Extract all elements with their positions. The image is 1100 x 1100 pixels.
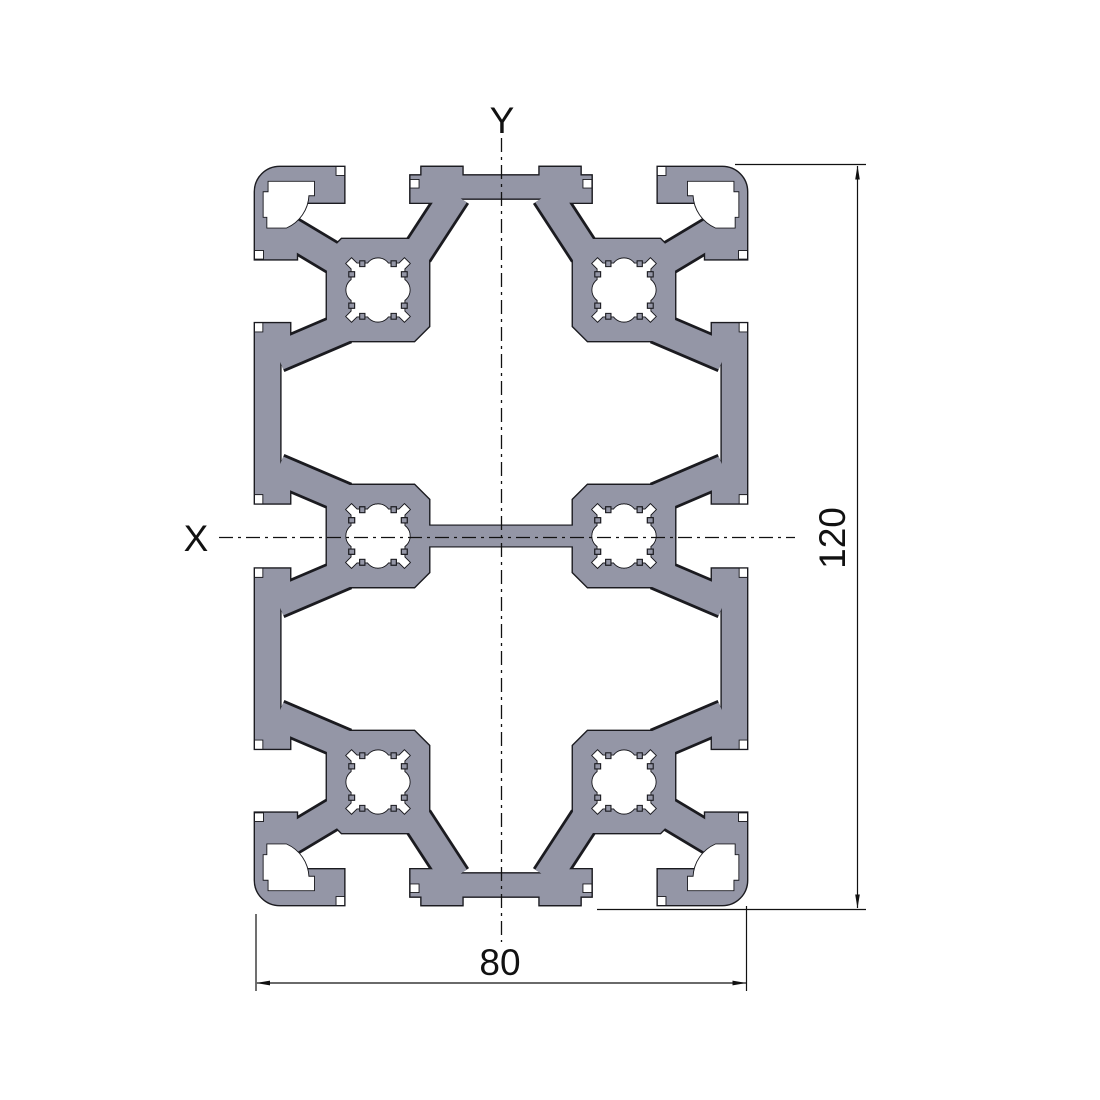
thread-tooth bbox=[637, 559, 642, 565]
thread-tooth bbox=[637, 313, 642, 319]
cavity bbox=[630, 769, 655, 794]
cavity bbox=[365, 788, 390, 813]
thread-tooth bbox=[360, 753, 365, 759]
arrow-down-icon bbox=[855, 895, 860, 909]
cavity bbox=[592, 769, 617, 794]
cavity bbox=[346, 523, 371, 548]
cavity bbox=[264, 182, 314, 228]
technical-drawing: Y X 120 80 bbox=[0, 0, 1100, 1100]
thread-tooth bbox=[595, 549, 601, 554]
cavity bbox=[365, 504, 390, 529]
thread-tooth bbox=[401, 549, 407, 554]
thread-tooth bbox=[606, 313, 611, 319]
cavity bbox=[255, 740, 262, 748]
cavity bbox=[411, 180, 419, 188]
thread-tooth bbox=[637, 753, 642, 759]
cavity bbox=[739, 813, 747, 821]
cavity bbox=[630, 277, 655, 302]
profile-segment bbox=[712, 323, 747, 503]
profile-segment bbox=[255, 569, 290, 749]
cavity bbox=[365, 542, 390, 567]
axis-label-y: Y bbox=[490, 100, 515, 141]
cavity bbox=[384, 277, 409, 302]
thread-tooth bbox=[349, 549, 355, 554]
thread-tooth bbox=[637, 261, 642, 267]
thread-tooth bbox=[647, 764, 653, 769]
thread-tooth bbox=[606, 261, 611, 267]
thread-tooth bbox=[360, 313, 365, 319]
cavity bbox=[255, 323, 262, 331]
cavity bbox=[264, 844, 314, 890]
thread-tooth bbox=[595, 795, 601, 800]
cavity bbox=[740, 495, 747, 503]
thread-tooth bbox=[391, 313, 396, 319]
thread-tooth bbox=[401, 303, 407, 308]
thread-tooth bbox=[606, 753, 611, 759]
cavity bbox=[611, 258, 636, 283]
dimension-width: 80 bbox=[256, 906, 747, 991]
thread-tooth bbox=[647, 518, 653, 523]
thread-tooth bbox=[647, 303, 653, 308]
cavity bbox=[336, 897, 344, 905]
cavity bbox=[365, 750, 390, 775]
thread-tooth bbox=[647, 795, 653, 800]
cavity bbox=[658, 167, 666, 175]
cavity bbox=[688, 844, 738, 890]
thread-tooth bbox=[647, 272, 653, 277]
thread-tooth bbox=[606, 559, 611, 565]
profile-segment bbox=[712, 569, 747, 749]
thread-tooth bbox=[391, 507, 396, 513]
thread-tooth bbox=[606, 805, 611, 811]
cavity bbox=[583, 884, 591, 892]
profile-segment bbox=[255, 323, 290, 503]
thread-tooth bbox=[391, 261, 396, 267]
cavity bbox=[346, 277, 371, 302]
thread-tooth bbox=[349, 272, 355, 277]
axis-label-x: X bbox=[184, 518, 209, 559]
thread-tooth bbox=[595, 303, 601, 308]
arrow-up-icon bbox=[855, 166, 860, 180]
cavity bbox=[365, 296, 390, 321]
cavity bbox=[630, 523, 655, 548]
thread-tooth bbox=[595, 272, 601, 277]
cavity bbox=[255, 813, 263, 821]
thread-tooth bbox=[391, 559, 396, 565]
thread-tooth bbox=[391, 805, 396, 811]
thread-tooth bbox=[595, 764, 601, 769]
cavity bbox=[336, 167, 344, 175]
thread-tooth bbox=[606, 507, 611, 513]
cavity bbox=[592, 277, 617, 302]
cavity bbox=[611, 788, 636, 813]
thread-tooth bbox=[637, 507, 642, 513]
thread-tooth bbox=[360, 261, 365, 267]
cavity bbox=[255, 569, 262, 577]
cavity bbox=[411, 884, 419, 892]
cavity bbox=[611, 542, 636, 567]
cavity bbox=[658, 897, 666, 905]
cavity bbox=[740, 323, 747, 331]
thread-tooth bbox=[360, 507, 365, 513]
cavity bbox=[592, 523, 617, 548]
cavity bbox=[688, 182, 738, 228]
thread-tooth bbox=[349, 795, 355, 800]
thread-tooth bbox=[637, 805, 642, 811]
thread-tooth bbox=[349, 764, 355, 769]
cavity bbox=[346, 769, 371, 794]
arrow-left-icon bbox=[256, 981, 270, 986]
cavity bbox=[740, 569, 747, 577]
cavity bbox=[583, 180, 591, 188]
cavity bbox=[611, 296, 636, 321]
cavity bbox=[255, 495, 262, 503]
cavity bbox=[255, 251, 263, 259]
cavity bbox=[611, 750, 636, 775]
thread-tooth bbox=[647, 549, 653, 554]
cavity bbox=[365, 258, 390, 283]
dimension-value-width: 80 bbox=[479, 942, 520, 983]
thread-tooth bbox=[595, 518, 601, 523]
cavity bbox=[611, 504, 636, 529]
thread-tooth bbox=[391, 753, 396, 759]
thread-tooth bbox=[349, 303, 355, 308]
cavity bbox=[384, 523, 409, 548]
thread-tooth bbox=[401, 272, 407, 277]
drawing-page: Y X 120 80 bbox=[0, 0, 1100, 1100]
cavity bbox=[739, 251, 747, 259]
cavity bbox=[740, 740, 747, 748]
cavity bbox=[384, 769, 409, 794]
thread-tooth bbox=[401, 518, 407, 523]
thread-tooth bbox=[401, 795, 407, 800]
thread-tooth bbox=[349, 518, 355, 523]
thread-tooth bbox=[360, 559, 365, 565]
dimension-value-height: 120 bbox=[812, 507, 853, 569]
thread-tooth bbox=[360, 805, 365, 811]
thread-tooth bbox=[401, 764, 407, 769]
arrow-right-icon bbox=[733, 981, 747, 986]
